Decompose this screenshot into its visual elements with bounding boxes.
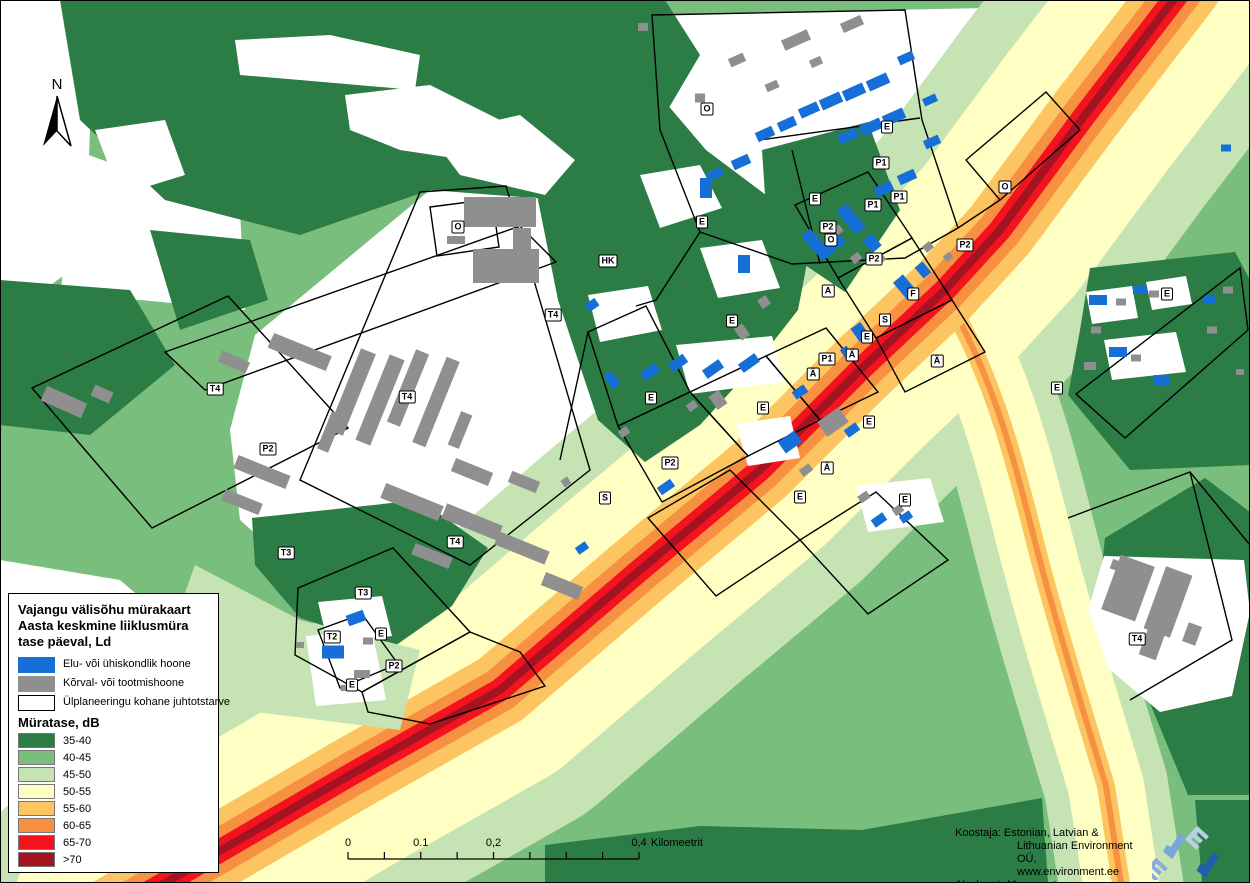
legend-noise-classes: 35-4040-4545-5050-5555-6060-6565-70>70 (18, 732, 209, 868)
legend-item-label: Elu- või ühiskondlik hoone (63, 658, 191, 671)
logo-e-top-right (1185, 826, 1209, 850)
noise-map-page: OEP1P1P1EP2OOP2P2HKEOT4EAFSEET4T4P2EP1ÄÄ… (0, 0, 1250, 883)
attribution-line: Koostaja: Estonian, Latvian & (955, 827, 1155, 840)
building-auxiliary (1116, 299, 1126, 306)
legend-item-label: 55-60 (63, 803, 91, 815)
legend-title-line1: Vajangu välisõhu mürakaart (18, 602, 209, 618)
elle-logo (1152, 824, 1246, 880)
scale-bar-label: 0,2 (486, 837, 501, 849)
building-auxiliary (464, 197, 536, 227)
legend-item-label: Ülplaneeringu kohane juhtotstarve (63, 696, 230, 709)
building-auxiliary (473, 249, 539, 283)
legend-item: Elu- või ühiskondlik hoone (18, 655, 209, 674)
building-residential (700, 178, 712, 198)
legend-item: 45-50 (18, 766, 209, 783)
building-auxiliary (638, 23, 648, 31)
attribution-text: Koostaja: Estonian, Latvian &Lithuanian … (955, 827, 1155, 883)
building-residential (1154, 375, 1170, 385)
legend-swatch (18, 784, 55, 799)
building-auxiliary (354, 670, 370, 678)
legend-item: Kõrval- või tootmishoone (18, 674, 209, 693)
building-residential (1204, 296, 1216, 304)
legend-item: 35-40 (18, 732, 209, 749)
building-residential (738, 255, 750, 273)
legend-building-items: Elu- või ühiskondlik hooneKõrval- või to… (18, 655, 209, 712)
building-auxiliary (341, 685, 350, 691)
legend-swatch (18, 801, 55, 816)
legend-item: 60-65 (18, 817, 209, 834)
north-label: N (52, 76, 63, 93)
legend-panel: Vajangu välisõhu mürakaart Aasta keskmin… (8, 593, 219, 873)
legend-swatch (18, 750, 55, 765)
legend-swatch (18, 695, 55, 711)
scale-bar-label: 0 (345, 837, 351, 849)
legend-item-label: 50-55 (63, 786, 91, 798)
scale-bar-label: 0.1 (413, 837, 428, 849)
building-residential (1133, 286, 1147, 294)
building-residential (322, 646, 344, 659)
legend-item-label: >70 (63, 854, 82, 866)
legend-item: >70 (18, 851, 209, 868)
legend-swatch (18, 676, 55, 692)
legend-item-label: 40-45 (63, 752, 91, 764)
scale-bar-label: 0,4 (631, 837, 646, 849)
legend-item-label: Kõrval- või tootmishoone (63, 677, 184, 690)
legend-item: 55-60 (18, 800, 209, 817)
legend-noise-title: Müratase, dB (18, 714, 209, 732)
north-arrow-left-half (43, 96, 57, 146)
legend-swatch (18, 835, 55, 850)
logo-check-top-left (1161, 833, 1188, 860)
attribution-line: Aluskaart: Maa-amet (955, 879, 1155, 883)
building-auxiliary (695, 94, 705, 103)
building-auxiliary (363, 638, 373, 645)
scale-bar-unit: Kilomeetrit (651, 837, 703, 849)
building-residential (1109, 347, 1127, 357)
legend-title-line2: Aasta keskmine liiklusmüra (18, 618, 209, 634)
building-auxiliary (1131, 355, 1141, 362)
scale-bar: 00.10,20,4Kilomeetrit (332, 833, 752, 867)
legend-item: Ülplaneeringu kohane juhtotstarve (18, 693, 209, 712)
building-auxiliary (1236, 369, 1244, 375)
legend-item: 65-70 (18, 834, 209, 851)
legend-title: Vajangu välisõhu mürakaart Aasta keskmin… (18, 602, 209, 650)
building-residential (1089, 295, 1107, 305)
building-auxiliary (1084, 362, 1096, 370)
attribution-line: Lithuanian Environment OÜ, (955, 840, 1155, 866)
legend-item: 40-45 (18, 749, 209, 766)
building-auxiliary (1149, 291, 1159, 298)
legend-swatch (18, 657, 55, 673)
legend-item-label: 65-70 (63, 837, 91, 849)
legend-swatch (18, 852, 55, 867)
logo-check-bottom-right (1194, 851, 1221, 878)
legend-item: 50-55 (18, 783, 209, 800)
building-auxiliary (1091, 327, 1101, 334)
legend-item-label: 35-40 (63, 735, 91, 747)
north-arrow-right-half (57, 96, 71, 146)
legend-title-line3: tase päeval, Ld (18, 634, 209, 650)
legend-swatch (18, 818, 55, 833)
building-auxiliary (447, 236, 465, 244)
legend-item-label: 60-65 (63, 820, 91, 832)
building-auxiliary (1223, 287, 1233, 294)
legend-swatch (18, 767, 55, 782)
legend-item-label: 45-50 (63, 769, 91, 781)
building-auxiliary (1207, 327, 1217, 334)
north-arrow: N (34, 74, 80, 156)
logo-e-bottom-left (1152, 858, 1168, 880)
legend-swatch (18, 733, 55, 748)
building-residential (1221, 145, 1231, 152)
attribution-line: www.environment.ee (955, 866, 1155, 879)
building-auxiliary (296, 642, 304, 648)
